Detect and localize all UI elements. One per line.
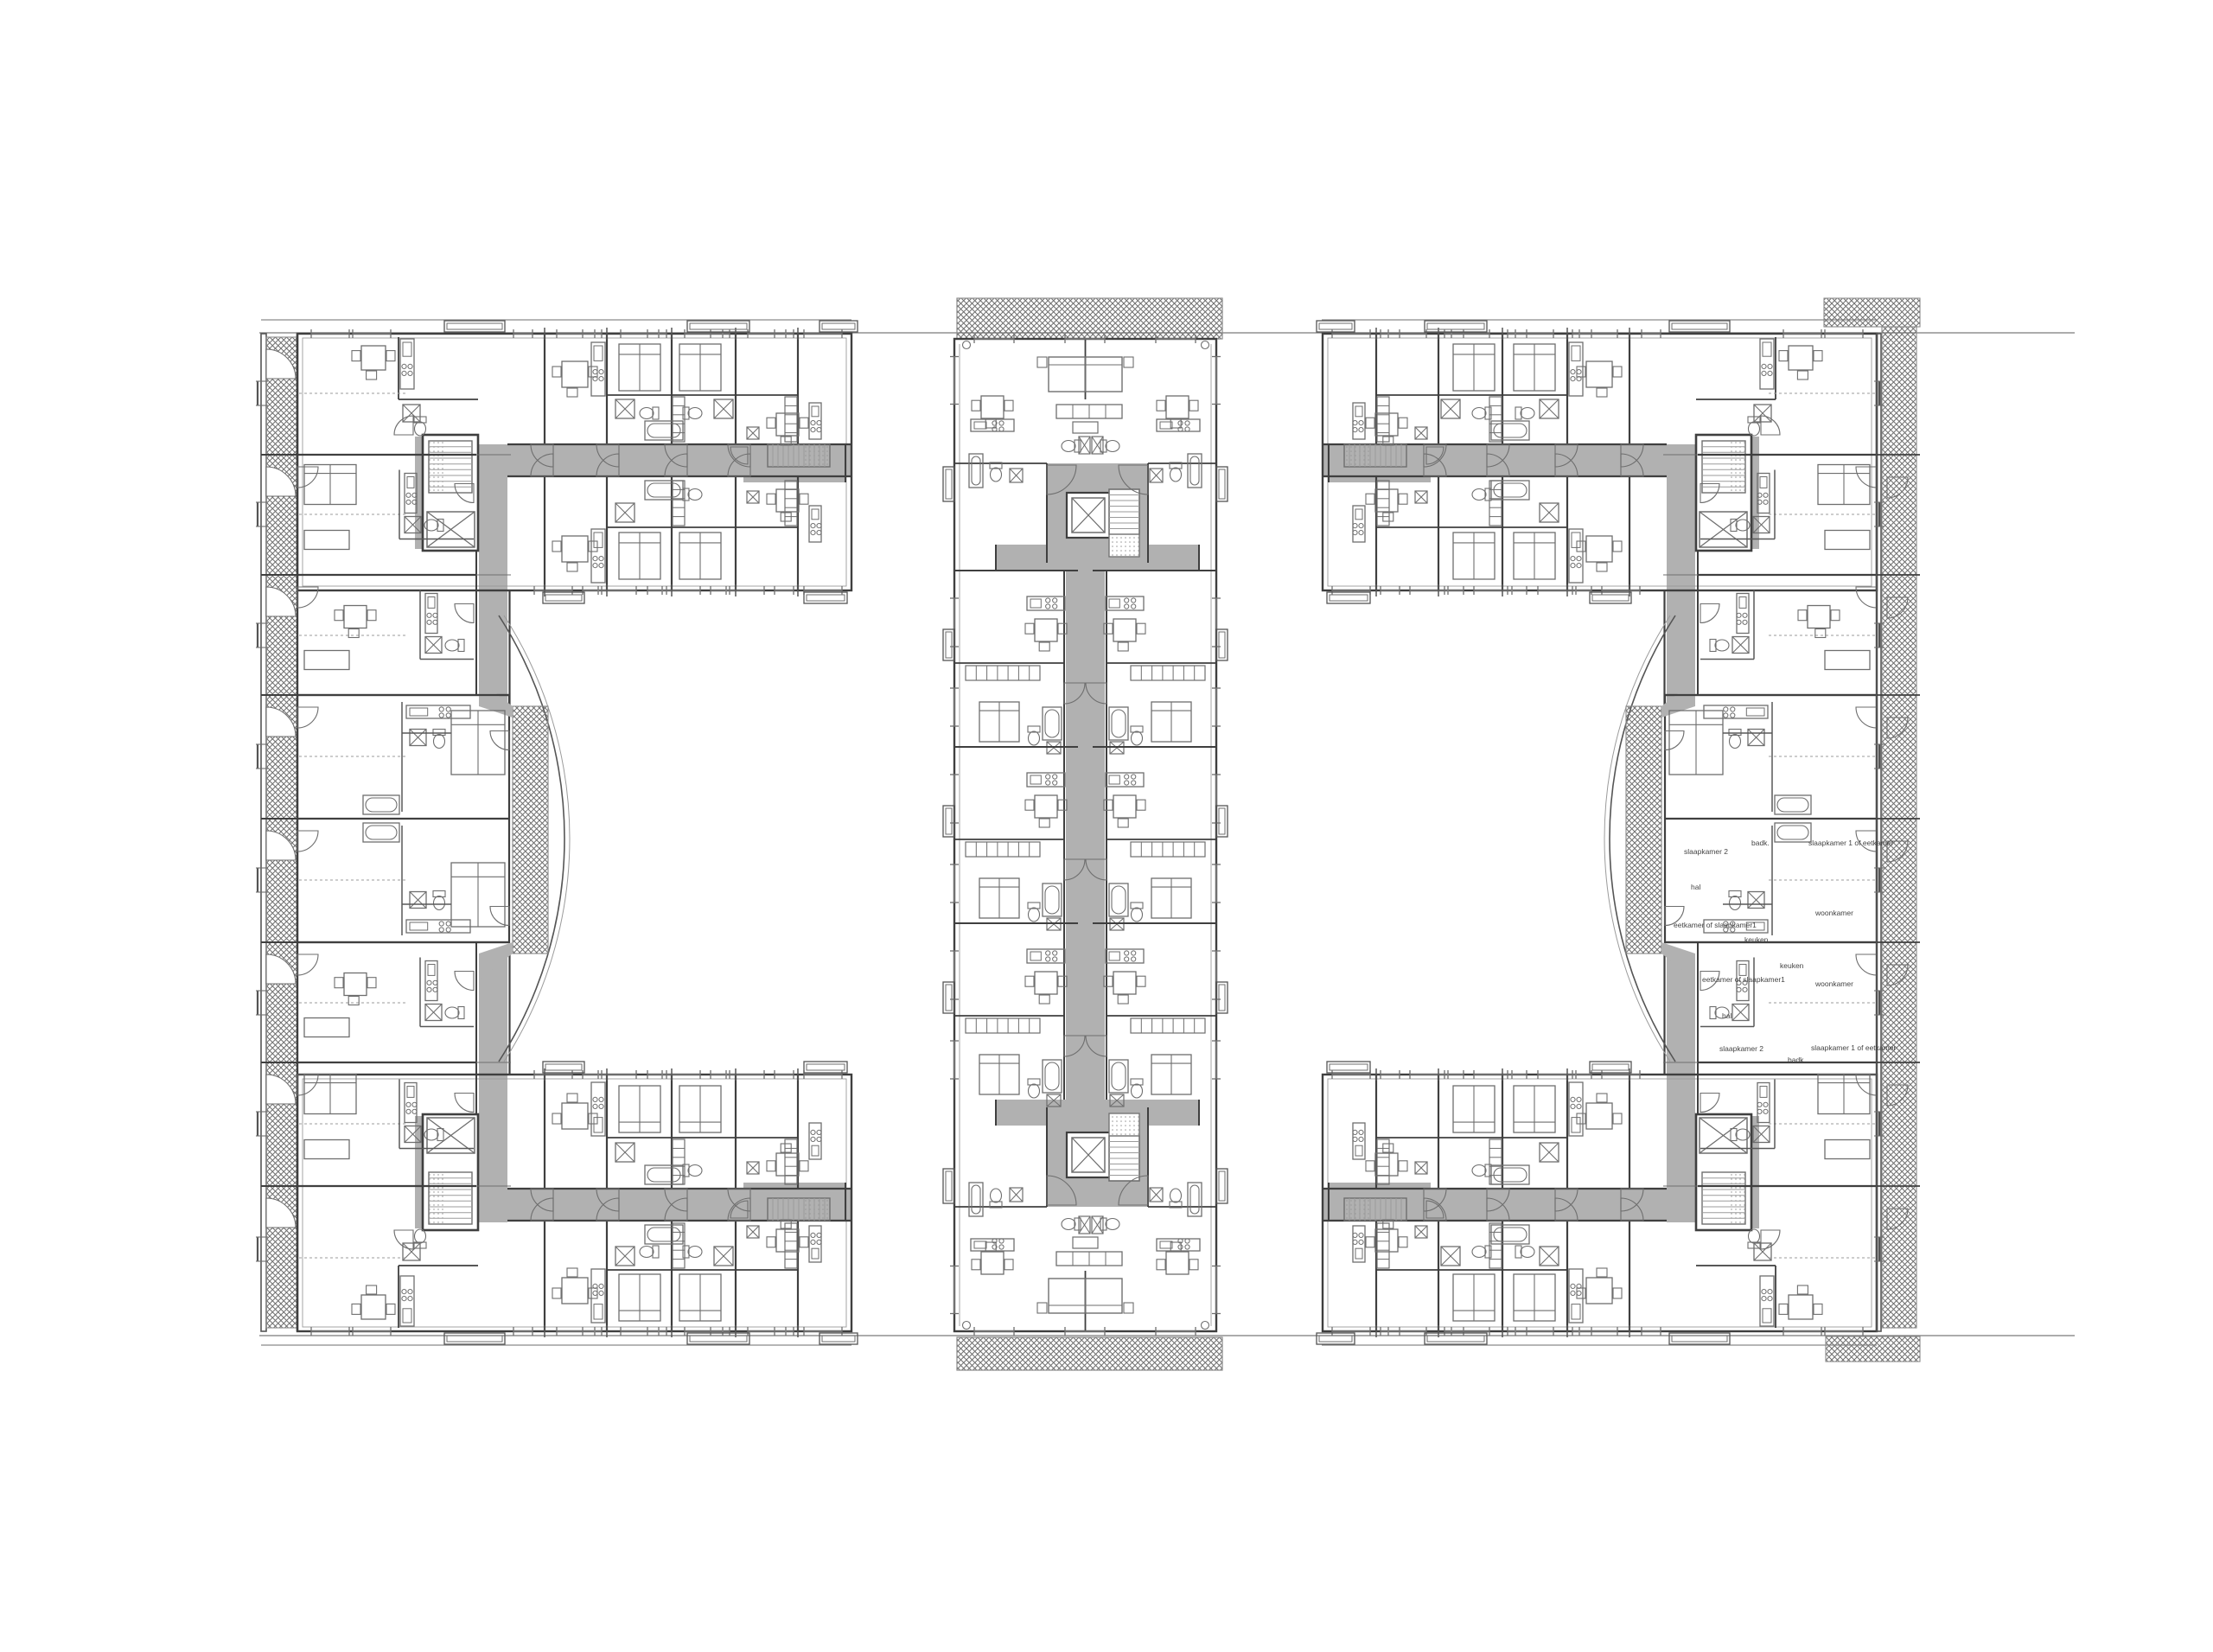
svg-text:badk.: badk.: [1751, 839, 1770, 847]
svg-text:slaapkamer 1 of eetkamer: slaapkamer 1 of eetkamer: [1811, 1043, 1896, 1052]
svg-text:eetkamer of slaapkamer1: eetkamer of slaapkamer1: [1674, 921, 1757, 929]
svg-text:badk.: badk.: [1788, 1056, 1806, 1064]
svg-text:woonkamer: woonkamer: [1814, 909, 1853, 917]
svg-text:slaapkamer 2: slaapkamer 2: [1684, 847, 1728, 856]
svg-text:slaapkamer 1 of eetkamer: slaapkamer 1 of eetkamer: [1808, 839, 1893, 847]
svg-text:keuken: keuken: [1780, 961, 1804, 970]
svg-text:woonkamer: woonkamer: [1814, 979, 1853, 988]
svg-text:slaapkamer 2: slaapkamer 2: [1719, 1044, 1763, 1053]
svg-text:keuken: keuken: [1744, 935, 1769, 944]
svg-text:eetkamer of slaapkamer1: eetkamer of slaapkamer1: [1702, 975, 1785, 984]
svg-text:hal: hal: [1722, 1011, 1731, 1020]
svg-text:hal: hal: [1691, 883, 1700, 891]
